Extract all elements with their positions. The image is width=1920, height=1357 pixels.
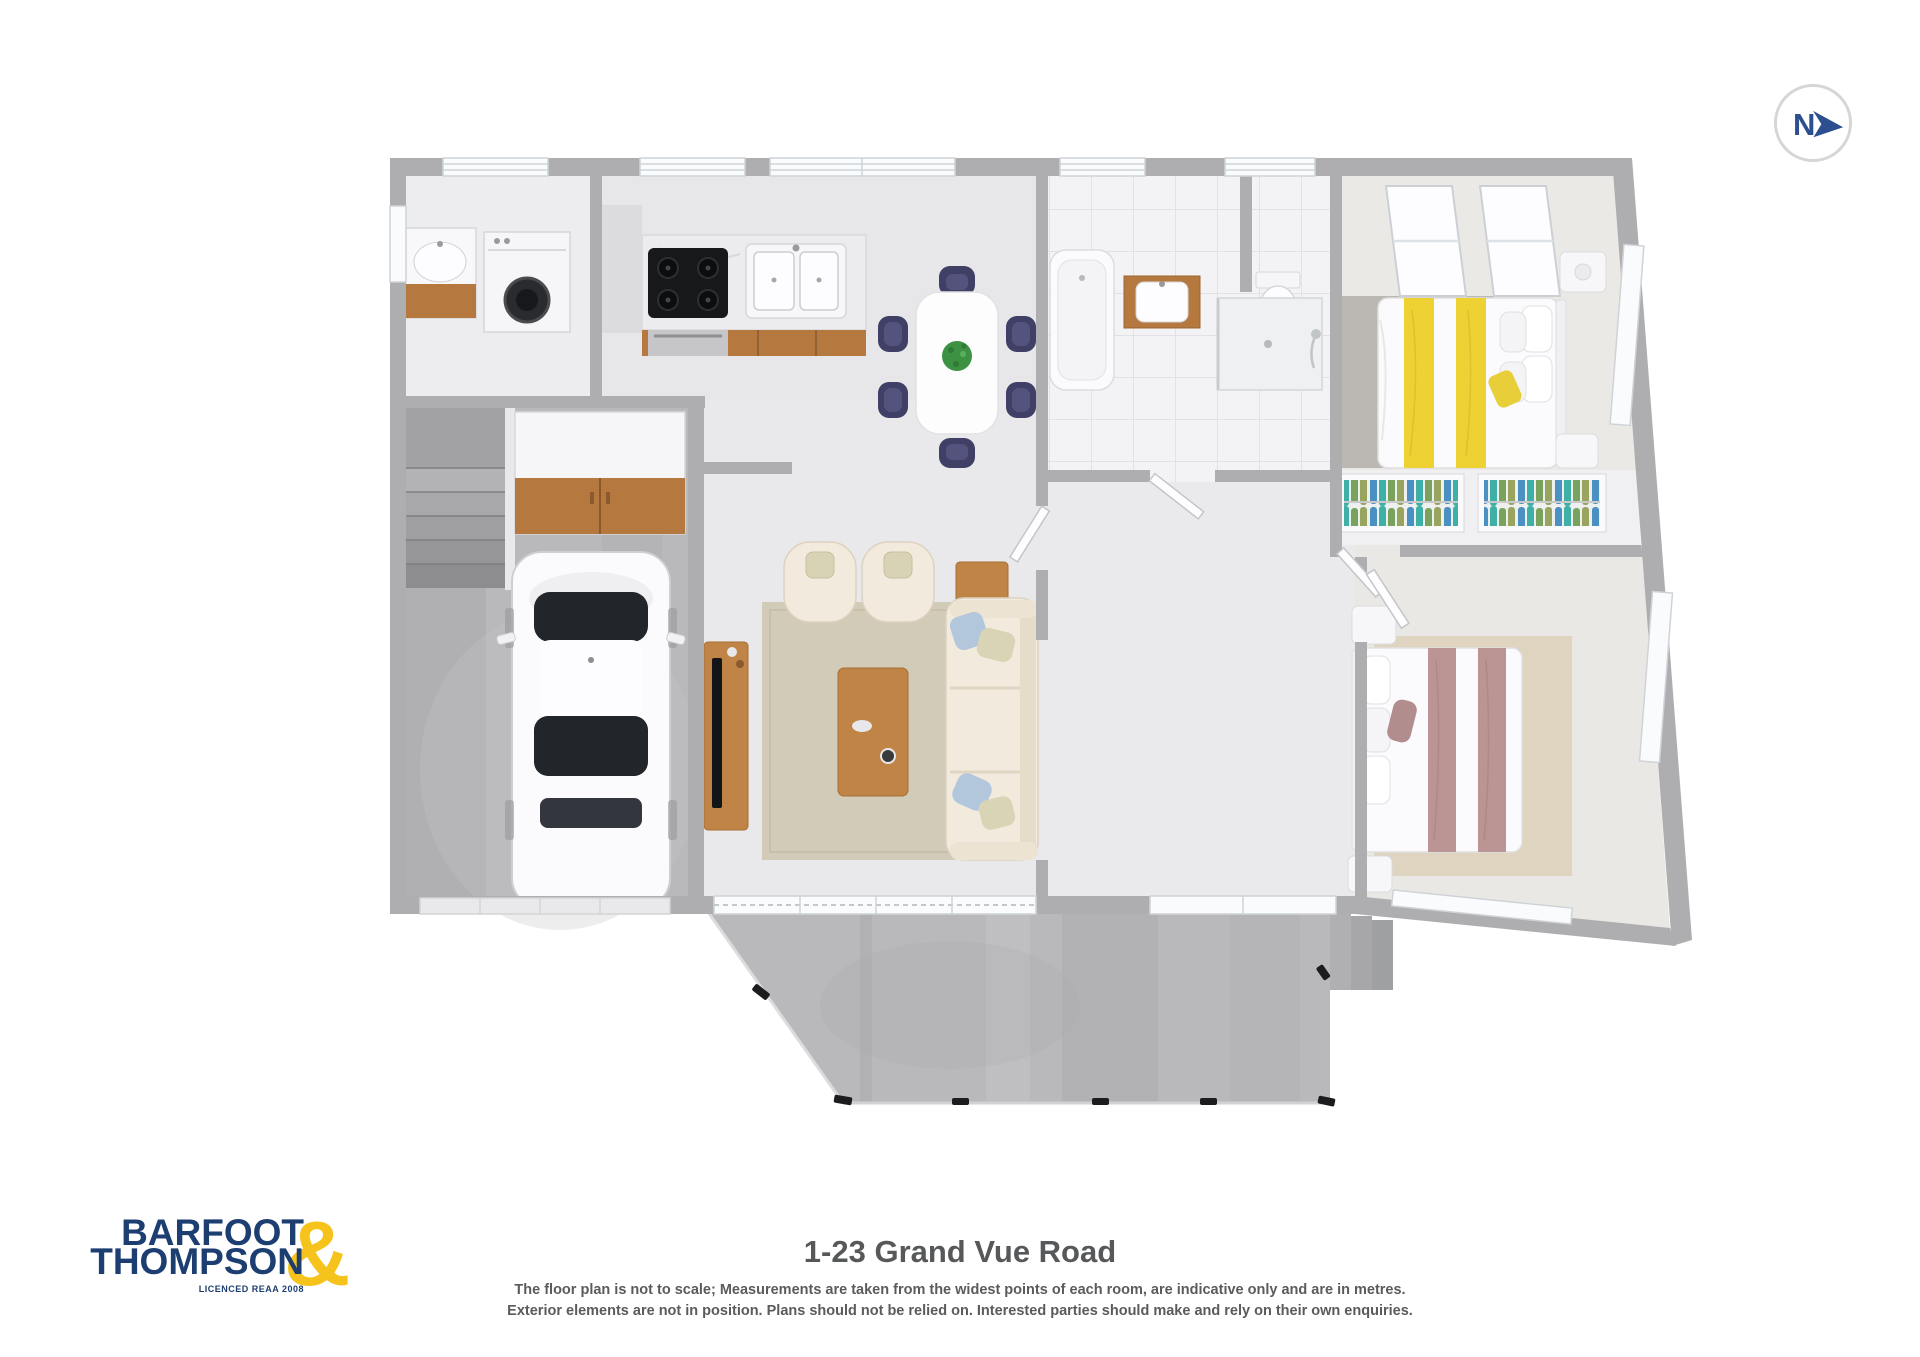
coffee-table [838,668,908,796]
car [496,552,685,908]
floorplan-3d-render [0,0,1920,1357]
disclaimer-line-2: Exterior elements are not in position. P… [0,1301,1920,1322]
bedroom1-bed [1378,298,1566,468]
bedroom1-nightstand-2 [1556,434,1598,468]
laundry [404,228,570,332]
side-table [956,562,1008,602]
bedroom2-nightstand-1 [1352,606,1396,644]
window-toilet [1225,158,1315,176]
washing-machine [484,232,570,332]
wall-top [390,158,1618,176]
wall-bathroom-bedroom1 [1330,158,1342,482]
window-dining [770,158,955,176]
bathtub [1050,250,1114,390]
bed1-stripe-1 [1404,298,1434,468]
deck-steps [1330,912,1393,990]
wall-wardrobe-bottom [1400,545,1643,557]
cooktop [648,248,728,318]
tv-unit [704,642,748,830]
page: N & BARFOOT THOMPSON LICENCED REAA 2008 … [0,0,1920,1357]
compass: N [1774,84,1852,162]
disclaimer: The floor plan is not to scale; Measurem… [0,1280,1920,1322]
garage-door [420,898,670,914]
address-title: 1-23 Grand Vue Road [0,1234,1920,1270]
garage [398,400,700,930]
window-kitchen [640,158,745,176]
window-laundry [443,158,548,176]
bedroom-2 [1348,606,1572,892]
vanity [1124,276,1200,328]
stairs [398,400,515,590]
bed2-stripe-2 [1478,648,1506,852]
car-windshield [534,592,648,642]
armchair-2 [862,542,934,622]
garage-cupboard [515,412,685,534]
car-rear-glass [534,716,648,776]
armchair-1 [784,542,856,622]
shower [1218,298,1322,390]
compass-arrow-icon [1809,110,1845,144]
table-plant [942,341,972,371]
bedroom2-nightstand-2 [1348,856,1392,892]
bedroom2-bed [1352,648,1522,852]
bed2-stripe-1 [1428,648,1456,852]
window-left-wall [390,206,406,282]
sofa [946,598,1038,860]
bathroom-partition [1240,176,1252,292]
tv-screen [712,658,722,808]
laundry-sink [404,228,476,318]
window-bathroom [1060,158,1145,176]
disclaimer-line-1: The floor plan is not to scale; Measurem… [0,1280,1920,1301]
wall-hall-bedroom2 [1355,642,1367,912]
sliding-door-entry [1150,896,1336,914]
deck-patio [703,905,1393,1107]
kitchen-sink [746,244,846,318]
wall-central [1036,158,1048,506]
oven [648,330,728,356]
sliding-door-living [714,896,1036,914]
hallway-floor [1042,482,1355,912]
